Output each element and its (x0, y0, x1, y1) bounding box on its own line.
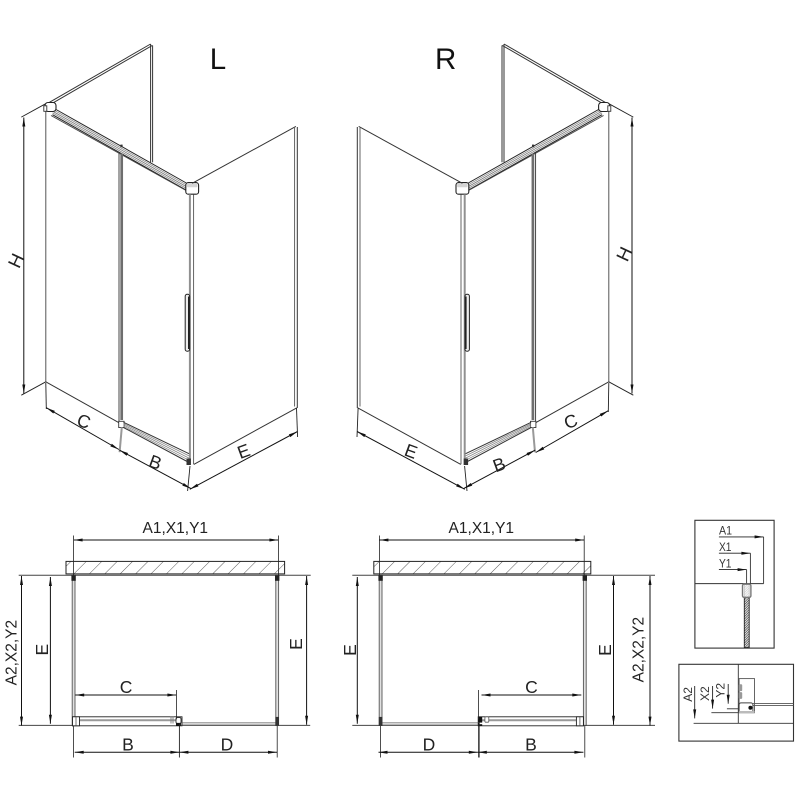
svg-text:A2,X2,Y2: A2,X2,Y2 (631, 617, 648, 683)
svg-text:Y1: Y1 (719, 556, 732, 570)
svg-text:E: E (286, 638, 306, 650)
svg-text:E: E (595, 644, 615, 656)
svg-text:C: C (525, 677, 538, 697)
svg-text:A1,X1,Y1: A1,X1,Y1 (449, 520, 515, 537)
svg-text:R: R (435, 43, 456, 76)
svg-text:D: D (423, 734, 436, 754)
svg-text:X2: X2 (698, 686, 712, 701)
svg-text:L: L (210, 43, 226, 76)
svg-text:D: D (221, 734, 234, 754)
svg-text:B: B (122, 734, 134, 754)
svg-text:E: E (32, 644, 52, 656)
svg-text:C: C (120, 677, 133, 697)
svg-text:Y2: Y2 (713, 683, 727, 698)
svg-text:A1: A1 (719, 524, 732, 538)
svg-text:A2: A2 (681, 687, 695, 702)
svg-text:A2,X2,Y2: A2,X2,Y2 (3, 620, 20, 686)
svg-text:A1,X1,Y1: A1,X1,Y1 (143, 520, 209, 537)
svg-text:X1: X1 (719, 540, 732, 554)
svg-text:E: E (340, 644, 360, 656)
svg-text:B: B (525, 734, 537, 754)
